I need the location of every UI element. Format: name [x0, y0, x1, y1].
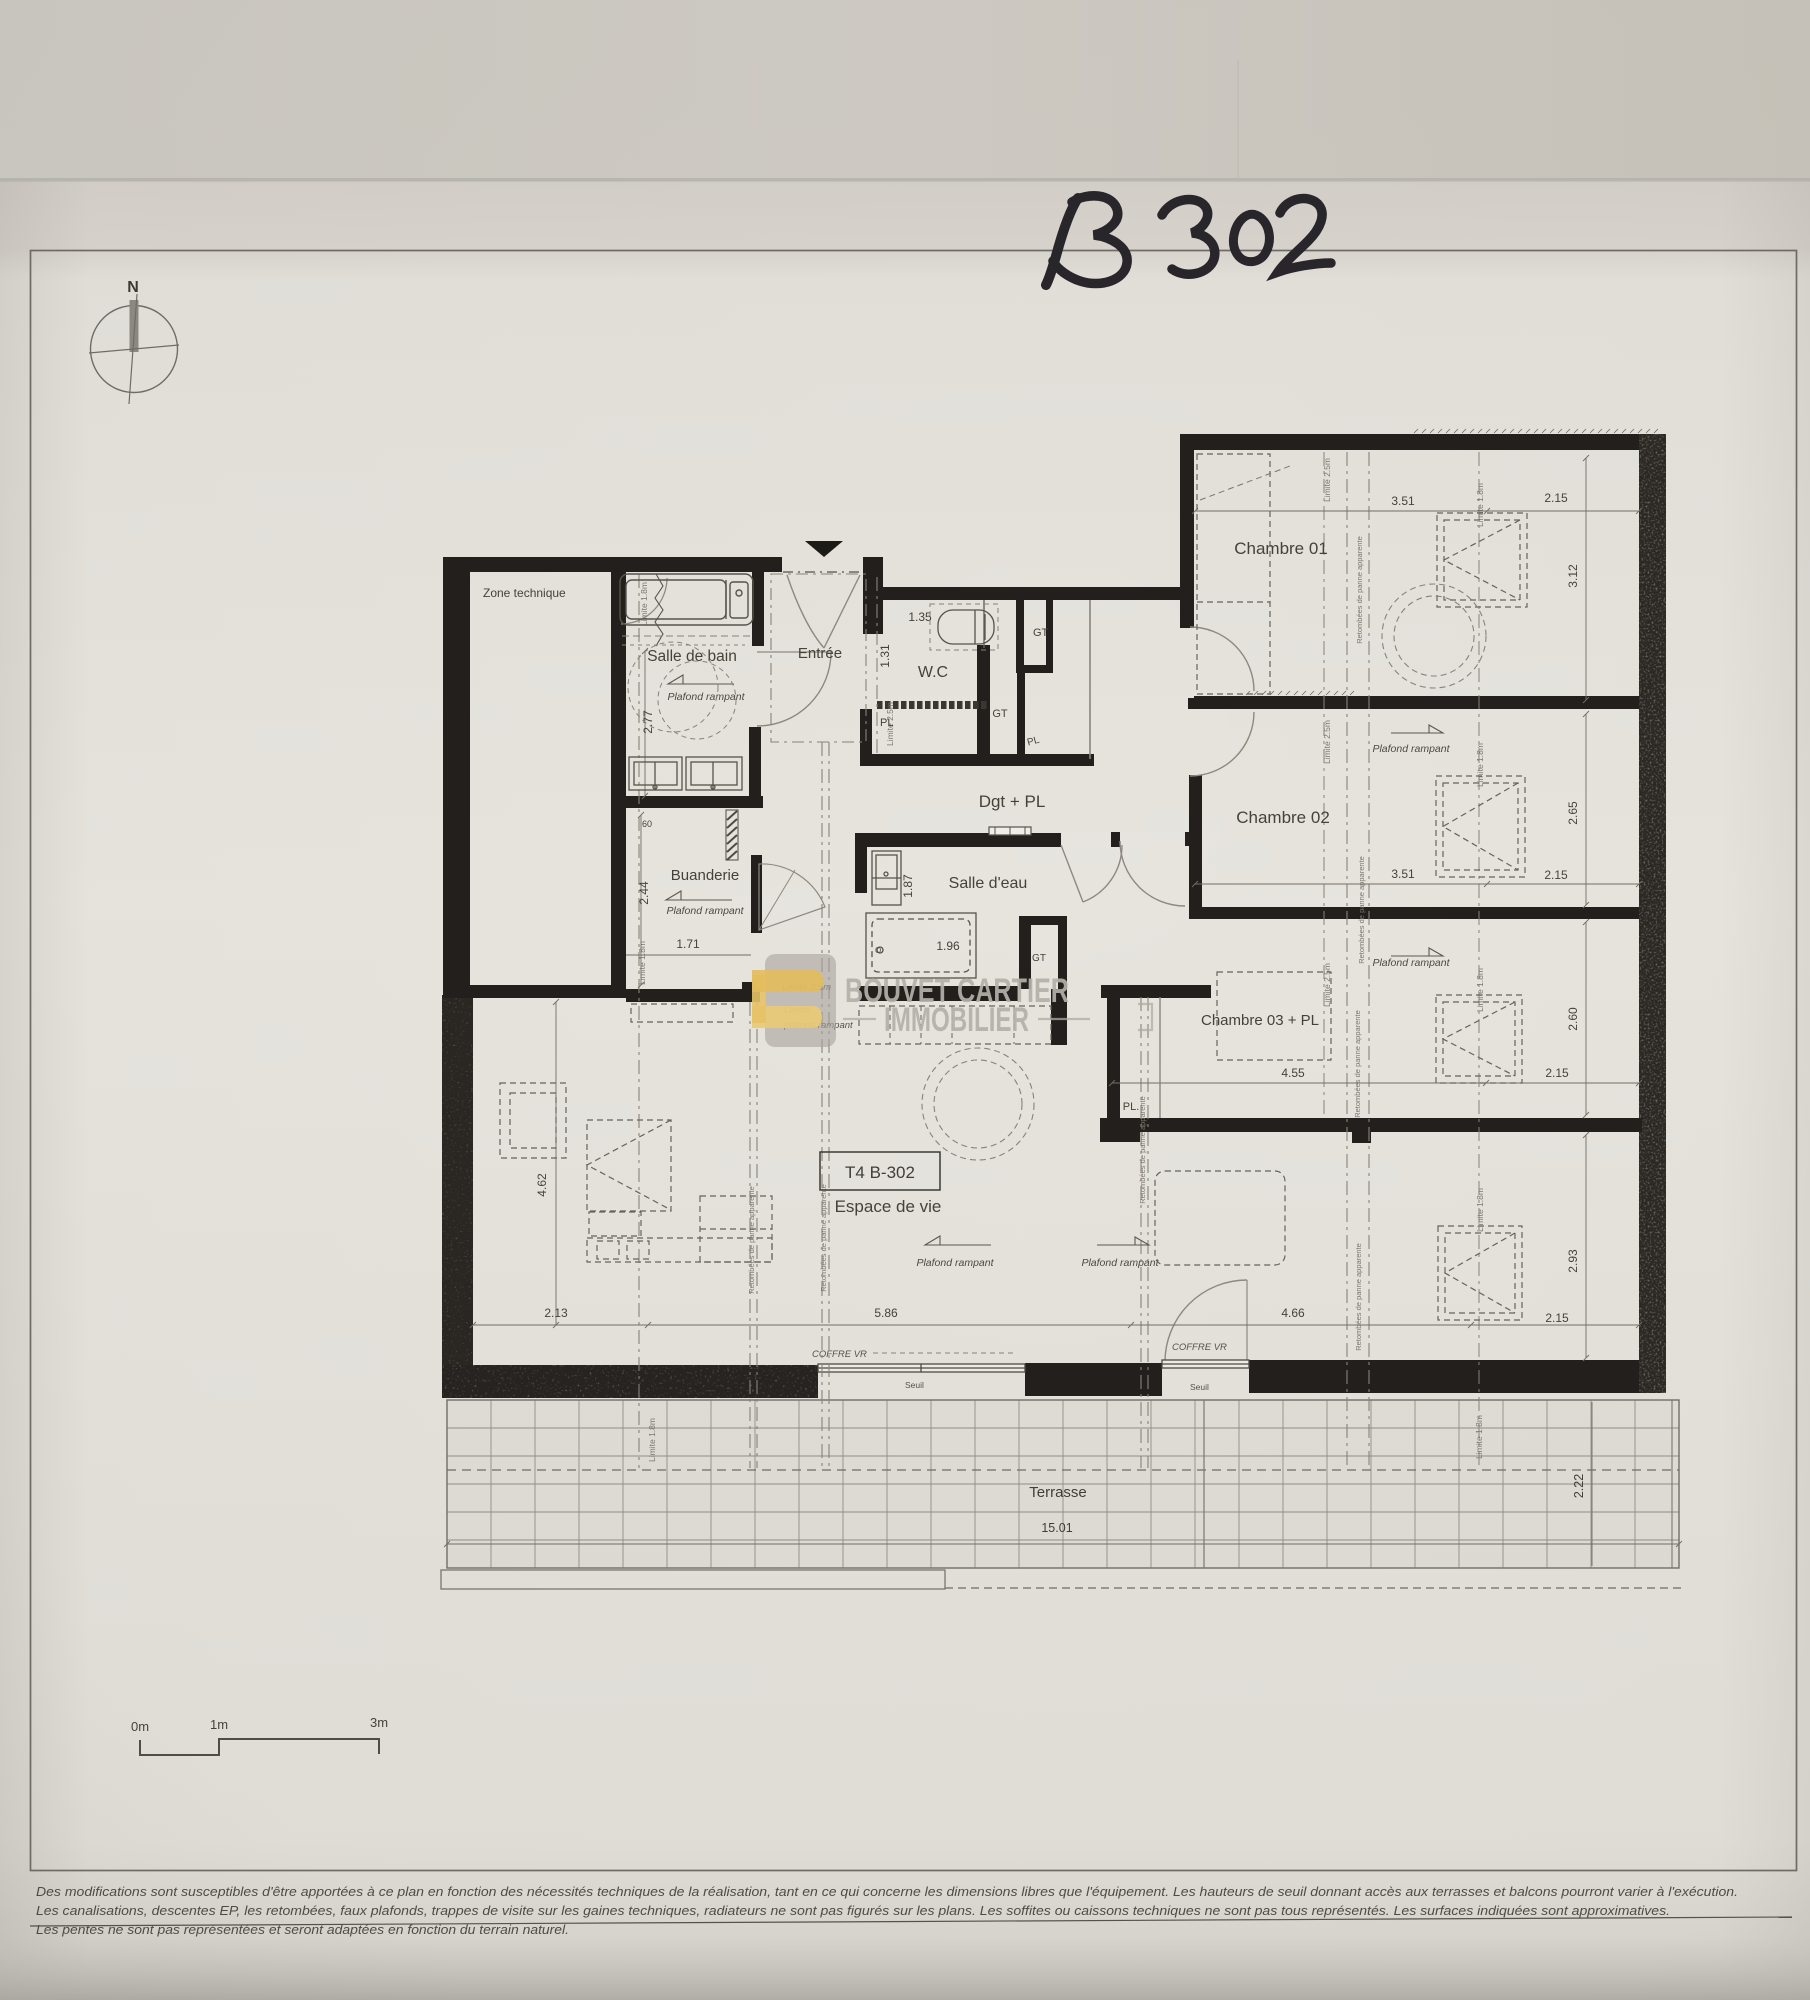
svg-text:4.62: 4.62: [535, 1173, 549, 1197]
svg-text:1m: 1m: [210, 1717, 228, 1732]
svg-text:Salle de bain: Salle de bain: [647, 648, 737, 665]
svg-text:Limite 2.5m: Limite 2.5m: [1322, 720, 1332, 764]
svg-text:Chambre 03 + PL: Chambre 03 + PL: [1201, 1012, 1319, 1029]
svg-text:2.13: 2.13: [544, 1306, 568, 1320]
svg-text:0m: 0m: [131, 1719, 149, 1734]
svg-text:Retombées de panne apparente: Retombées de panne apparente: [747, 1186, 756, 1294]
svg-text:Dgt + PL: Dgt + PL: [979, 792, 1046, 811]
svg-text:Limite 1.8m: Limite 1.8m: [1474, 1415, 1484, 1459]
svg-text:Retombées de panne apparente: Retombées de panne apparente: [1353, 1010, 1362, 1118]
svg-text:2.15: 2.15: [1544, 868, 1568, 882]
svg-text:Limite 2.5m: Limite 2.5m: [1322, 458, 1332, 502]
svg-text:Buanderie: Buanderie: [671, 867, 739, 884]
svg-text:PL.: PL.: [1123, 1101, 1140, 1113]
svg-text:W.C: W.C: [918, 664, 948, 681]
svg-text:2.93: 2.93: [1566, 1249, 1580, 1273]
svg-text:15.01: 15.01: [1041, 1521, 1072, 1535]
svg-text:Plafond rampant: Plafond rampant: [1372, 743, 1450, 755]
svg-text:1.87: 1.87: [901, 874, 915, 898]
svg-text:Plafond rampant: Plafond rampant: [1081, 1257, 1159, 1269]
svg-text:Chambre 02: Chambre 02: [1236, 808, 1330, 827]
svg-text:Limite 1.8m: Limite 1.8m: [1475, 743, 1485, 787]
svg-text:5.86: 5.86: [874, 1306, 898, 1320]
svg-text:Retombées de panne apparente: Retombées de panne apparente: [1354, 1243, 1363, 1351]
svg-text:4.55: 4.55: [1281, 1066, 1305, 1080]
svg-text:T4 B-302: T4 B-302: [845, 1163, 915, 1182]
svg-text:IMMOBILIER: IMMOBILIER: [884, 1001, 1029, 1039]
svg-text:3.12: 3.12: [1566, 564, 1580, 588]
svg-text:2.15: 2.15: [1544, 491, 1568, 505]
svg-text:Seuil: Seuil: [1190, 1382, 1209, 1392]
svg-text:3m: 3m: [370, 1715, 388, 1730]
svg-text:60: 60: [642, 819, 652, 829]
svg-text:Plafond rampant: Plafond rampant: [666, 905, 744, 917]
svg-text:Terrasse: Terrasse: [1029, 1484, 1087, 1501]
svg-text:Chambre 01: Chambre 01: [1234, 539, 1328, 558]
svg-text:1.35: 1.35: [908, 610, 932, 624]
svg-text:Des modifications sont suscept: Des modifications sont susceptibles d'êt…: [36, 1884, 1738, 1899]
svg-text:2.77: 2.77: [641, 710, 655, 734]
svg-text:1.96: 1.96: [936, 939, 960, 953]
svg-text:1.71: 1.71: [676, 937, 700, 951]
svg-text:Zone technique: Zone technique: [483, 586, 566, 600]
svg-text:Retombées de panne apparente: Retombées de panne apparente: [819, 1184, 828, 1292]
svg-text:Limite 1.8m: Limite 1.8m: [647, 1418, 657, 1462]
svg-text:2.44: 2.44: [637, 881, 651, 905]
svg-text:Limite 1.8m: Limite 1.8m: [637, 941, 647, 985]
svg-text:3.51: 3.51: [1391, 867, 1415, 881]
svg-text:Retombées de panne apparente: Retombées de panne apparente: [1357, 856, 1366, 964]
svg-text:2.15: 2.15: [1545, 1311, 1569, 1325]
svg-text:2.15: 2.15: [1545, 1066, 1569, 1080]
svg-text:O: O: [875, 946, 881, 955]
svg-text:N: N: [127, 279, 139, 296]
svg-text:Entrée: Entrée: [798, 645, 842, 662]
svg-text:2.22: 2.22: [1572, 1474, 1586, 1498]
svg-text:4.66: 4.66: [1281, 1306, 1305, 1320]
svg-text:PL: PL: [880, 717, 893, 729]
svg-text:Limite 1.8m: Limite 1.8m: [1475, 1188, 1485, 1232]
svg-text:GT: GT: [992, 708, 1008, 720]
svg-text:1.31: 1.31: [878, 644, 892, 668]
svg-text:Les canalisations, descentes E: Les canalisations, descentes EP, les ret…: [36, 1903, 1670, 1918]
svg-text:Espace de vie: Espace de vie: [835, 1197, 942, 1216]
svg-text:2.65: 2.65: [1566, 801, 1580, 825]
svg-text:Plafond rampant: Plafond rampant: [1372, 957, 1450, 969]
svg-text:Plafond rampant: Plafond rampant: [916, 1257, 994, 1269]
svg-text:COFFRE VR: COFFRE VR: [812, 1349, 867, 1360]
svg-text:2.60: 2.60: [1566, 1007, 1580, 1031]
svg-text:Limite 1.8m: Limite 1.8m: [1475, 968, 1485, 1012]
svg-text:GT: GT: [1033, 627, 1049, 639]
svg-text:GT: GT: [1032, 953, 1046, 964]
svg-text:COFFRE VR: COFFRE VR: [1172, 1342, 1227, 1353]
svg-text:3.51: 3.51: [1391, 494, 1415, 508]
svg-text:Seuil: Seuil: [905, 1380, 924, 1390]
svg-text:Retombées de panne apparente: Retombées de panne apparente: [1355, 536, 1364, 644]
svg-text:Salle d'eau: Salle d'eau: [949, 875, 1028, 892]
svg-text:Plafond rampant: Plafond rampant: [667, 691, 745, 703]
svg-text:Retombées de panne apparente: Retombées de panne apparente: [1138, 1096, 1147, 1204]
